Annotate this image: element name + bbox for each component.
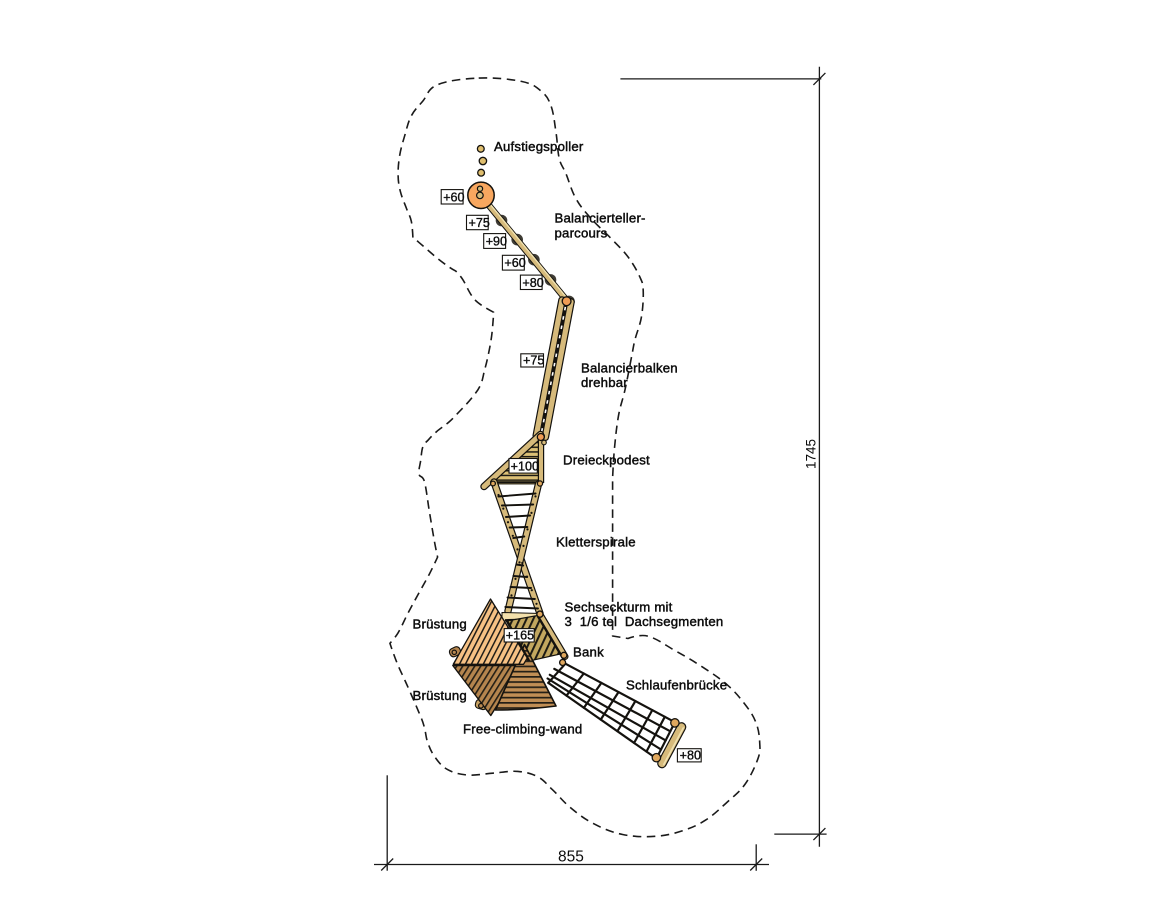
svg-text:+75: +75: [469, 216, 490, 230]
svg-text:3 1/6 tel Dachsegmenten: 3 1/6 tel Dachsegmenten: [565, 614, 724, 629]
svg-text:Schlaufenbrücke: Schlaufenbrücke: [626, 678, 727, 693]
svg-text:Brüstung: Brüstung: [413, 688, 467, 703]
svg-text:Free-climbing-wand: Free-climbing-wand: [463, 722, 582, 737]
svg-text:Dreieckpodest: Dreieckpodest: [563, 453, 650, 468]
svg-text:+90: +90: [486, 235, 507, 249]
svg-text:+80: +80: [522, 276, 543, 290]
svg-text:+165: +165: [506, 629, 534, 643]
svg-text:+100: +100: [511, 459, 539, 473]
svg-text:855: 855: [558, 849, 584, 866]
svg-text:drehbar: drehbar: [581, 375, 628, 390]
svg-text:+60: +60: [443, 190, 464, 204]
svg-text:Bank: Bank: [573, 645, 604, 660]
svg-text:parcours: parcours: [555, 226, 608, 241]
svg-text:+60: +60: [504, 256, 525, 270]
svg-text:Balancierteller-: Balancierteller-: [555, 211, 646, 226]
svg-text:Kletterspirale: Kletterspirale: [556, 535, 636, 550]
svg-text:Brüstung: Brüstung: [413, 617, 467, 632]
svg-text:1745: 1745: [804, 439, 819, 469]
svg-text:Balancierbalken: Balancierbalken: [581, 361, 678, 376]
svg-text:Sechseckturm mit: Sechseckturm mit: [565, 600, 673, 615]
svg-text:+80: +80: [680, 749, 701, 763]
svg-text:+75: +75: [523, 354, 544, 368]
svg-text:Aufstiegspoller: Aufstiegspoller: [494, 139, 584, 154]
